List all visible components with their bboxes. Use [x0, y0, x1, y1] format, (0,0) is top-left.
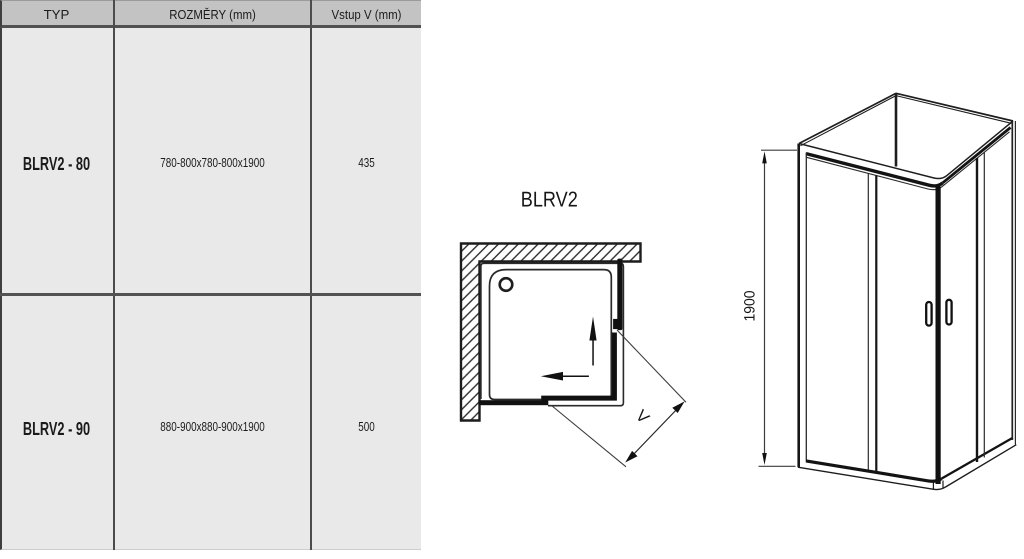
svg-text:BLRV2: BLRV2	[521, 187, 578, 211]
svg-text:1900: 1900	[741, 291, 758, 322]
svg-text:V: V	[632, 407, 653, 428]
